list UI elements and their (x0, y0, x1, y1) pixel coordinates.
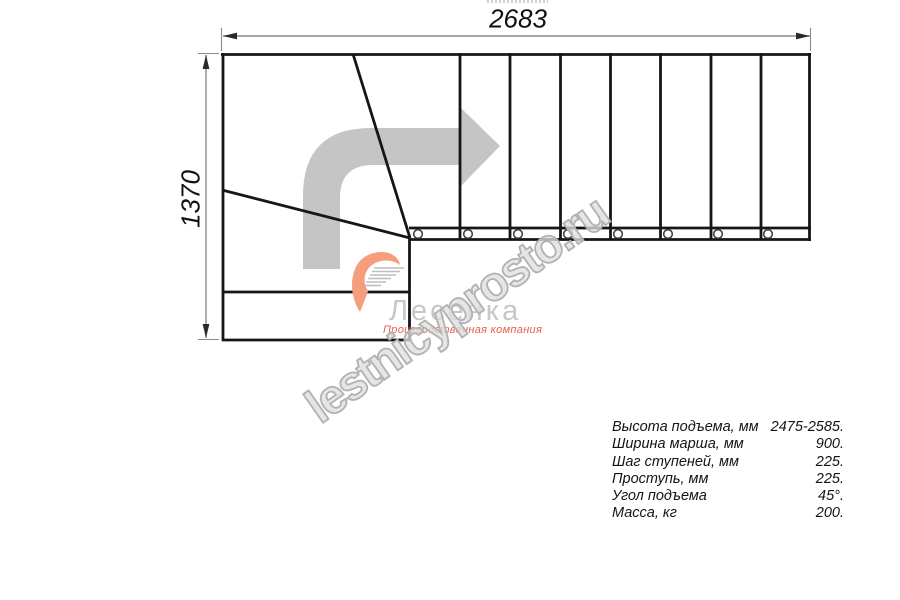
baluster-circle (714, 230, 723, 239)
width-dim-label: 2683 (489, 4, 547, 35)
spec-value: 225. (816, 454, 844, 471)
baluster-circle (664, 230, 673, 239)
spec-row: Масса, кг 200. (612, 505, 844, 522)
dim-arrowhead-right (796, 33, 810, 40)
spec-label: Шаг ступеней, мм (612, 454, 739, 471)
spec-table: Высота подъема, мм 2475-2585. Ширина мар… (612, 419, 844, 523)
spec-label: Высота подъема, мм (612, 419, 759, 436)
spec-label: Масса, кг (612, 505, 677, 522)
staircase-drawing-page: 2683 1370 Лесенка Производственная компа… (0, 0, 900, 600)
spec-label: Проступь, мм (612, 471, 708, 488)
spec-value: 225. (816, 471, 844, 488)
spec-row: Шаг ступеней, мм 225. (612, 454, 844, 471)
baluster-circle (464, 230, 473, 239)
dim-arrowhead-bottom (203, 324, 210, 338)
spec-label: Ширина марша, мм (612, 436, 744, 453)
dim-arrowhead-left (223, 33, 237, 40)
spec-row: Ширина марша, мм 900. (612, 436, 844, 453)
spec-value: 200. (816, 505, 844, 522)
spec-row: Проступь, мм 225. (612, 471, 844, 488)
spec-row: Угол подъема 45°. (612, 488, 844, 505)
spec-value: 900. (816, 436, 844, 453)
baluster-circle (414, 230, 423, 239)
height-dim-label: 1370 (176, 170, 207, 228)
spec-value: 2475-2585. (771, 419, 844, 436)
spec-label: Угол подъема (612, 488, 707, 505)
tread-lines (460, 53, 761, 240)
spec-value: 45°. (818, 488, 844, 505)
baluster-circle (764, 230, 773, 239)
spec-row: Высота подъема, мм 2475-2585. (612, 419, 844, 436)
travel-direction-arrow-icon (303, 107, 500, 269)
dim-arrowhead-top (203, 55, 210, 69)
